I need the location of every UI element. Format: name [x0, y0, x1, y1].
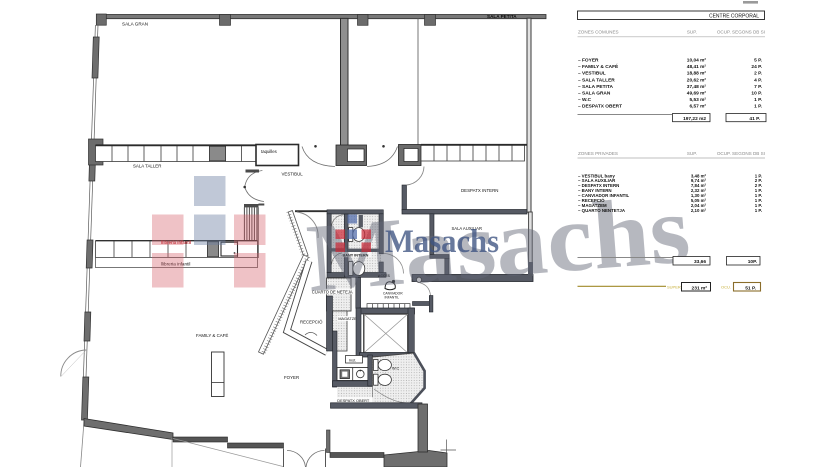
svg-text:4 P.: 4 P. [754, 77, 762, 83]
svg-text:SALA TALLER: SALA TALLER [133, 164, 161, 169]
svg-text:24 P.: 24 P. [751, 64, 762, 70]
svg-text:197,22 m2: 197,22 m2 [683, 116, 706, 122]
svg-text:VESTIBUL: VESTIBUL [282, 172, 304, 177]
svg-text:1 P.: 1 P. [754, 97, 762, 103]
svg-text:taquilles: taquilles [261, 149, 277, 154]
svg-text:– QUARTO NENTETJA: – QUARTO NENTETJA [578, 208, 626, 213]
svg-text:18,88 m²: 18,88 m² [687, 71, 707, 77]
svg-text:– SALA TALLER: – SALA TALLER [578, 77, 615, 83]
svg-text:W.C: W.C [392, 366, 400, 371]
svg-text:10P.: 10P. [748, 259, 757, 265]
svg-text:33,66: 33,66 [694, 259, 706, 265]
svg-text:37,48 m²: 37,48 m² [687, 84, 707, 90]
svg-text:6,57 m²: 6,57 m² [689, 104, 706, 110]
svg-text:20,62 m²: 20,62 m² [687, 77, 707, 83]
svg-text:– FOYER: – FOYER [578, 58, 599, 64]
svg-text:2 P.: 2 P. [754, 71, 762, 77]
svg-text:ZONES PRIVADES: ZONES PRIVADES [578, 151, 618, 156]
svg-text:SALA PETITA: SALA PETITA [487, 14, 517, 19]
svg-text:10,04 m²: 10,04 m² [687, 58, 707, 64]
svg-text:1 P.: 1 P. [754, 104, 762, 110]
svg-text:48,41 m²: 48,41 m² [687, 64, 707, 70]
svg-text:SUP.: SUP. [687, 151, 697, 156]
svg-text:231 m²: 231 m² [692, 285, 708, 291]
svg-text:OCU.: OCU. [721, 284, 731, 289]
svg-text:Inst.: Inst. [349, 357, 357, 362]
svg-text:10 P.: 10 P. [751, 91, 762, 97]
svg-text:SALA GRAN: SALA GRAN [122, 22, 148, 27]
svg-text:– DESPATX OBERT: – DESPATX OBERT [578, 104, 622, 110]
svg-text:OCUP. SEGONS DB SI: OCUP. SEGONS DB SI [717, 30, 765, 35]
svg-text:RECEPCIÓ: RECEPCIÓ [300, 320, 323, 325]
svg-text:– SALA PETITA: – SALA PETITA [578, 84, 613, 90]
svg-text:– SALA GRAN: – SALA GRAN [578, 91, 611, 97]
svg-text:5 P.: 5 P. [754, 58, 762, 64]
svg-text:41 P.: 41 P. [749, 116, 760, 122]
svg-text:FOYER: FOYER [284, 375, 299, 380]
svg-text:Masachs: Masachs [385, 224, 499, 260]
svg-text:FAMILY & CAFÉ: FAMILY & CAFÉ [196, 333, 228, 338]
svg-text:OCUP. SEGONS DB SI: OCUP. SEGONS DB SI [717, 151, 765, 156]
svg-text:1 P.: 1 P. [755, 208, 762, 213]
svg-text:5,53 m²: 5,53 m² [689, 97, 706, 103]
svg-text:ZONES COMUNES: ZONES COMUNES [578, 30, 619, 35]
svg-text:SUP.: SUP. [687, 30, 697, 35]
svg-text:49,69 m²: 49,69 m² [687, 91, 707, 97]
svg-text:7 P.: 7 P. [754, 84, 762, 90]
svg-text:DESPATX OBERT: DESPATX OBERT [337, 398, 370, 403]
svg-text:2,10 m²: 2,10 m² [691, 208, 707, 213]
svg-text:CENTRE CORPORAL: CENTRE CORPORAL [709, 13, 759, 19]
svg-text:51 P.: 51 P. [745, 285, 756, 291]
svg-text:– W.C: – W.C [578, 97, 592, 103]
svg-text:– VESTIBUL: – VESTIBUL [578, 71, 606, 77]
